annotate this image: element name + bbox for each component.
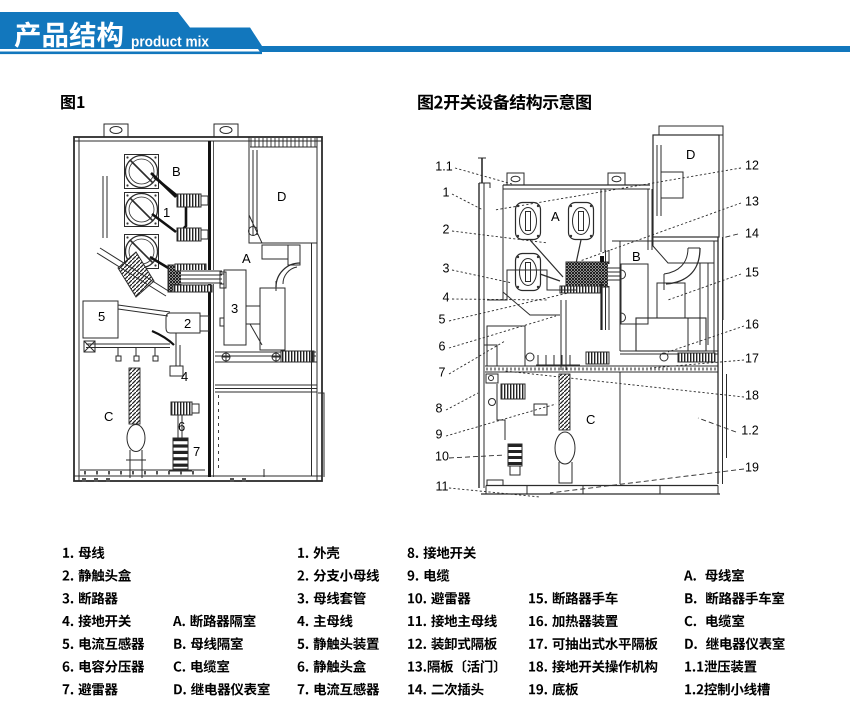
svg-text:11: 11 [436,480,449,494]
svg-text:7: 7 [193,444,200,459]
svg-text:product mix: product mix [131,35,209,51]
svg-text:13: 13 [745,195,759,209]
svg-text:5: 5 [439,313,446,327]
svg-text:C: C [104,409,113,424]
svg-text:D: D [277,189,286,204]
svg-text:B: B [632,249,641,264]
svg-text:8: 8 [436,402,443,416]
svg-text:7: 7 [439,366,446,380]
svg-text:1: 1 [443,186,450,200]
svg-text:6: 6 [439,340,446,354]
svg-text:1.1: 1.1 [435,160,452,174]
svg-text:A: A [551,209,560,224]
svg-text:1: 1 [163,205,170,220]
svg-text:15: 15 [745,266,759,280]
svg-text:12: 12 [745,159,759,173]
svg-text:D: D [686,147,695,162]
svg-text:3: 3 [443,262,450,276]
svg-text:10: 10 [435,450,449,464]
svg-text:A: A [242,251,251,266]
svg-text:C: C [586,412,595,427]
svg-text:1.2: 1.2 [741,424,758,438]
svg-text:4: 4 [443,291,450,305]
svg-text:4: 4 [181,369,188,384]
svg-text:16: 16 [745,318,759,332]
svg-text:2: 2 [443,223,450,237]
svg-text:19: 19 [745,461,759,475]
svg-text:5: 5 [98,309,105,324]
svg-text:9: 9 [436,428,443,442]
svg-text:2: 2 [184,316,191,331]
svg-text:B: B [172,164,181,179]
svg-text:3: 3 [231,301,238,316]
svg-text:14: 14 [745,227,759,241]
svg-text:17: 17 [745,352,759,366]
svg-text:18: 18 [745,389,759,403]
